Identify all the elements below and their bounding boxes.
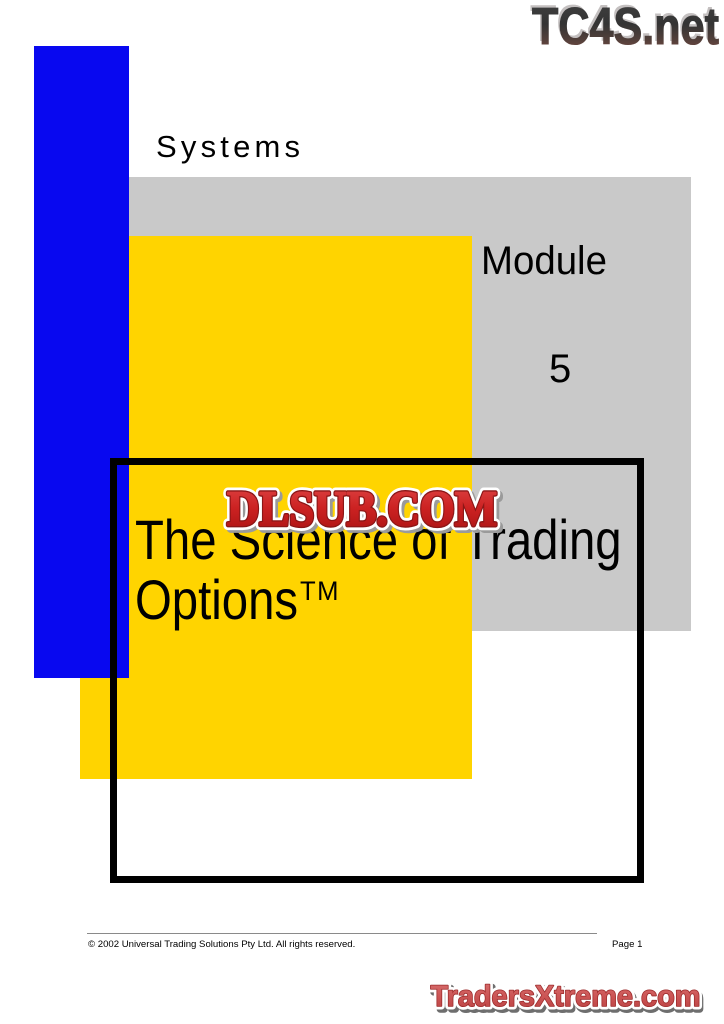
svg-text:TradersXtreme.com: TradersXtreme.com (431, 980, 701, 1013)
svg-text:DLSUB.COM: DLSUB.COM (227, 480, 497, 536)
svg-text:TC4S.net: TC4S.net (532, 0, 719, 56)
